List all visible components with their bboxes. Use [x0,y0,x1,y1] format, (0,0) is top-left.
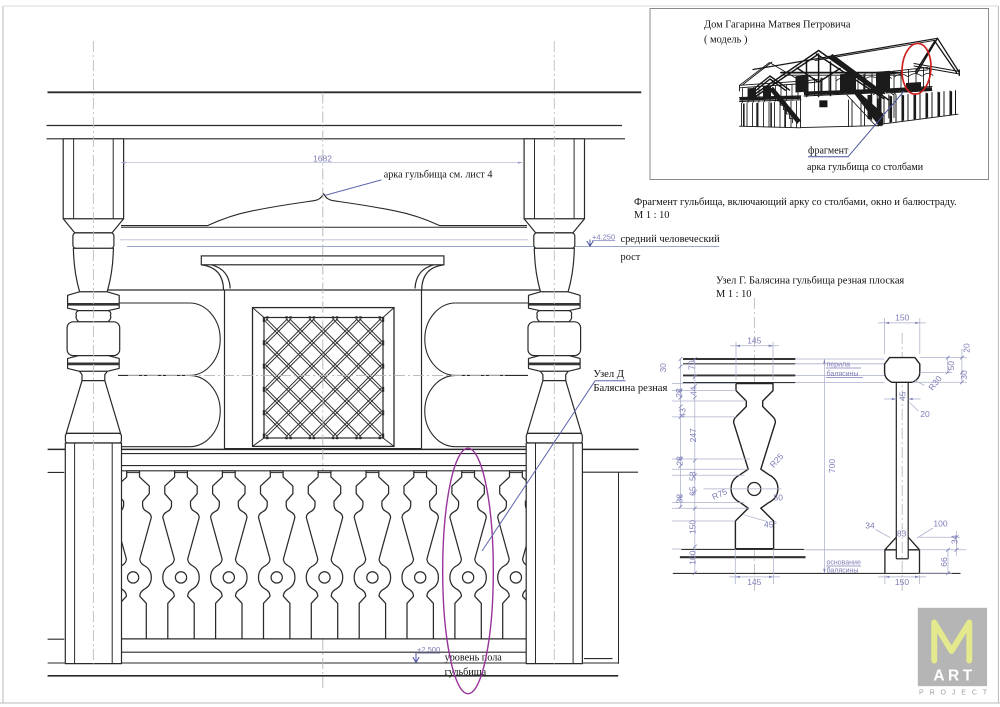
svg-text:20: 20 [962,343,972,353]
svg-text:перила: перила [827,361,851,368]
svg-text:М 1 : 10: М 1 : 10 [716,289,752,300]
svg-text:уровень пола: уровень пола [445,652,503,663]
svg-text:700: 700 [827,459,837,473]
svg-text:+2.500: +2.500 [417,645,440,654]
svg-text:38: 38 [675,494,685,504]
svg-text:Дом Гагарина Матвея Петровича: Дом Гагарина Матвея Петровича [704,20,851,31]
svg-text:145: 145 [747,336,761,346]
svg-text:гульбища: гульбища [445,667,487,678]
svg-text:43: 43 [677,408,687,418]
svg-text:ART: ART [933,667,975,684]
svg-text:50: 50 [774,493,784,503]
svg-text:83: 83 [897,528,907,538]
svg-text:28: 28 [674,388,684,398]
svg-text:балясины: балясины [827,370,859,378]
svg-text:( модель ): ( модель ) [704,35,747,46]
svg-text:1682: 1682 [313,154,332,164]
svg-text:70: 70 [687,360,697,370]
svg-text:100: 100 [688,550,698,564]
svg-text:М 1 : 10: М 1 : 10 [634,210,670,221]
svg-text:30: 30 [658,363,668,373]
svg-text:балясины: балясины [827,566,859,574]
svg-text:основание: основание [827,559,861,566]
svg-text:50: 50 [946,361,956,371]
svg-text:34: 34 [865,521,875,531]
svg-text:66: 66 [939,557,949,567]
svg-text:рост: рост [621,252,641,263]
svg-text:арка гульбища см. лист 4: арка гульбища см. лист 4 [384,169,493,180]
svg-text:100: 100 [933,519,947,529]
svg-text:145: 145 [747,577,761,587]
svg-text:Фрагмент гульбища, включающий: Фрагмент гульбища, включающий арку со ст… [634,197,957,208]
svg-text:30: 30 [959,370,969,380]
svg-text:45: 45 [898,391,908,401]
svg-text:58: 58 [688,471,698,481]
svg-text:247: 247 [688,428,698,442]
svg-text:арка гульбища со столбами: арка гульбища со столбами [807,162,924,173]
svg-text:Узел Г. Балясина гульбища ре: Узел Г. Балясина гульбища резная плоская [716,275,904,286]
svg-text:150: 150 [895,577,909,587]
svg-text:28: 28 [675,456,685,466]
svg-text:+4.250: +4.250 [592,232,615,241]
svg-text:Балясина резная: Балясина резная [593,383,667,394]
svg-text:150: 150 [688,520,698,534]
svg-text:20: 20 [920,409,930,419]
svg-text:средний человеческий: средний человеческий [621,234,721,245]
svg-text:Узел Д: Узел Д [593,369,624,380]
svg-text:PROJECT: PROJECT [919,689,993,696]
svg-text:150: 150 [895,312,909,322]
svg-text:45°: 45° [764,520,777,530]
svg-text:фрагмент: фрагмент [808,146,849,157]
